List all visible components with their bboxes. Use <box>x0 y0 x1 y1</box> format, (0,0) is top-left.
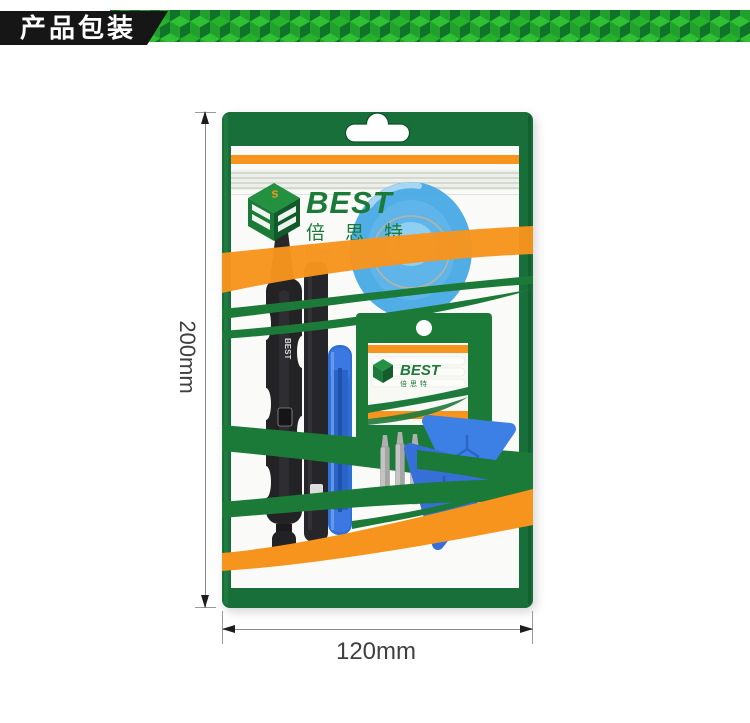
bag-right-shade <box>528 115 531 604</box>
package-bag: BEST <box>222 112 533 608</box>
banner: 产品包装 <box>0 0 750 54</box>
tool-print-badge <box>278 408 292 426</box>
dim-height-label: 200mm <box>174 317 200 397</box>
dim-arrow-right-icon <box>520 625 533 633</box>
dim-width-label: 120mm <box>316 638 436 666</box>
inner-packet-hole <box>416 320 432 336</box>
banner-cubes <box>80 0 750 54</box>
banner-title: 产品包装 <box>20 13 150 43</box>
dim-arrow-left-icon <box>222 625 235 633</box>
brand-text: BEST <box>306 185 395 220</box>
dim-arrow-up-icon <box>201 111 209 124</box>
orange-stripe-top <box>231 155 519 164</box>
product-photo: BEST <box>222 112 533 608</box>
bag-left-sheen <box>224 115 228 604</box>
inner-packet-brand: BEST <box>400 362 442 379</box>
tool-print-text: BEST <box>283 338 292 359</box>
dim-height-line <box>205 112 206 608</box>
banner-pattern <box>80 0 750 54</box>
page: 产品包装 <box>0 0 750 723</box>
inner-packet-brand-cn: 倍思特 <box>400 379 430 388</box>
dim-arrow-down-icon <box>201 595 209 608</box>
dim-width-line <box>222 629 533 630</box>
